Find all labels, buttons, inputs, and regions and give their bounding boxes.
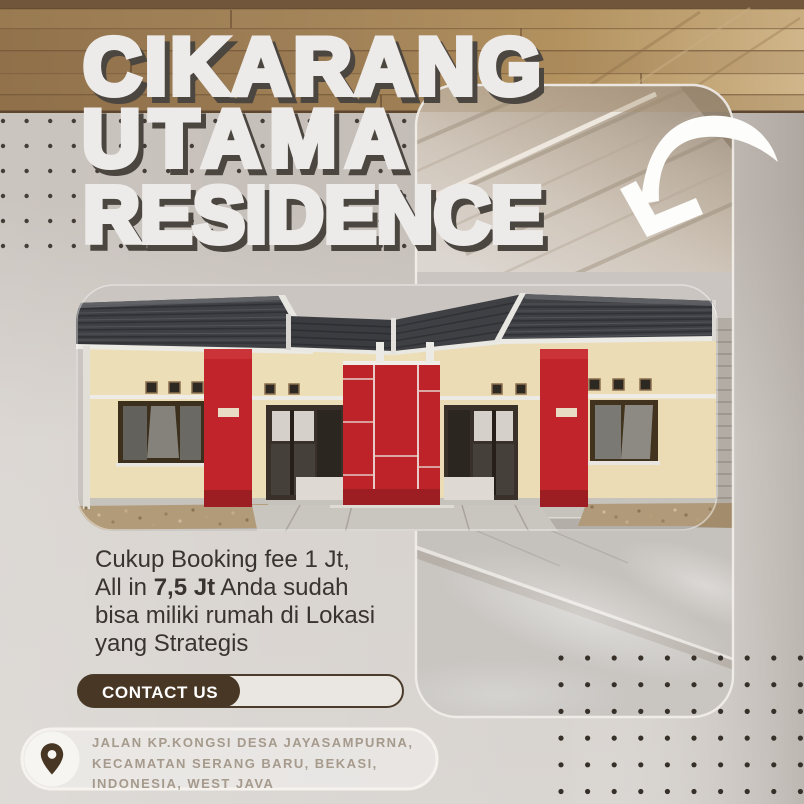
svg-text:KECAMATAN SERANG BARU, BEKASI,: KECAMATAN SERANG BARU, BEKASI, xyxy=(92,756,378,771)
svg-text:JALAN KP.KONGSI DESA JAYASAMPU: JALAN KP.KONGSI DESA JAYASAMPURNA, xyxy=(92,735,413,750)
svg-text:yang Strategis: yang Strategis xyxy=(95,630,248,657)
svg-text:Cukup Booking fee 1 Jt,: Cukup Booking fee 1 Jt, xyxy=(95,546,350,573)
svg-text:CONTACT US: CONTACT US xyxy=(102,683,218,702)
svg-text:INDONESIA, WEST JAVA: INDONESIA, WEST JAVA xyxy=(92,776,274,791)
svg-text:bisa miliki rumah di Lokasi: bisa miliki rumah di Lokasi xyxy=(95,602,375,629)
svg-text:All in 7,5 Jt Anda sudah: All in 7,5 Jt Anda sudah xyxy=(95,574,349,601)
svg-text:RESIDENCE: RESIDENCE xyxy=(83,170,543,259)
